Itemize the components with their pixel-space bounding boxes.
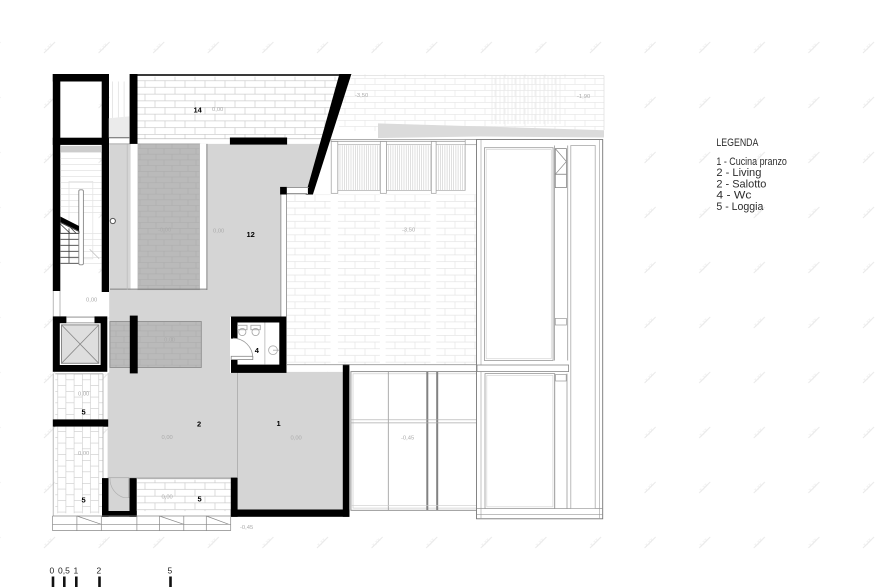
svg-text:0,00: 0,00 xyxy=(162,495,173,501)
svg-text:0,00: 0,00 xyxy=(291,436,302,442)
svg-text:-3,50: -3,50 xyxy=(402,228,415,234)
svg-text:5: 5 xyxy=(82,408,86,417)
svg-text:1: 1 xyxy=(277,419,281,428)
svg-text:5: 5 xyxy=(198,495,202,504)
svg-text:0,5: 0,5 xyxy=(58,566,70,576)
svg-text:-0,45: -0,45 xyxy=(240,525,253,531)
svg-text:2: 2 xyxy=(97,566,102,576)
svg-text:4 - Wc: 4 - Wc xyxy=(716,190,751,202)
svg-text:2: 2 xyxy=(197,420,201,429)
svg-text:1 - Cucina pranzo: 1 - Cucina pranzo xyxy=(716,156,787,168)
svg-text:12: 12 xyxy=(247,230,255,239)
svg-text:-3,50: -3,50 xyxy=(355,93,368,99)
svg-text:0,00: 0,00 xyxy=(78,451,89,457)
svg-text:-1,90: -1,90 xyxy=(577,94,590,100)
svg-text:0,00: 0,00 xyxy=(78,392,89,398)
svg-text:-0,45: -0,45 xyxy=(401,436,414,442)
svg-text:0,00: 0,00 xyxy=(86,298,97,304)
svg-text:2 - Salotto: 2 - Salotto xyxy=(716,178,766,190)
svg-text:5: 5 xyxy=(82,496,86,505)
svg-text:5: 5 xyxy=(168,566,173,576)
svg-text:0: 0 xyxy=(50,566,55,576)
svg-text:0,00: 0,00 xyxy=(164,338,175,344)
svg-text:2 - Living: 2 - Living xyxy=(716,167,761,179)
svg-text:-0,00: -0,00 xyxy=(158,228,171,234)
svg-text:LEGENDA: LEGENDA xyxy=(716,137,758,149)
svg-text:0,00: 0,00 xyxy=(213,229,224,235)
svg-text:14: 14 xyxy=(194,106,203,115)
svg-text:0,00: 0,00 xyxy=(162,435,173,441)
svg-text:5 - Loggia: 5 - Loggia xyxy=(716,201,764,213)
svg-text:1: 1 xyxy=(74,566,79,576)
svg-text:0,00: 0,00 xyxy=(212,107,223,113)
